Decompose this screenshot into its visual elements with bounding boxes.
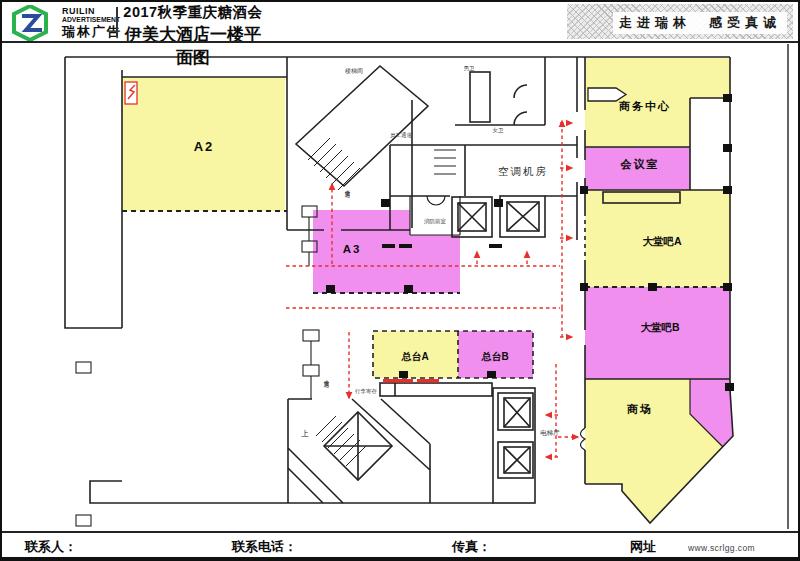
- label-meeting-room: 会议室: [620, 158, 660, 170]
- fire-hydrant-icon: [125, 82, 137, 104]
- label-fire-anteroom: 消防前室: [424, 218, 447, 225]
- label-luggage: 行李寄存: [355, 388, 378, 395]
- decor-fret-band: 走进瑞林 感受真诚: [567, 4, 793, 39]
- brand-line2: ADVERTISEMENT: [62, 16, 122, 23]
- label-mens-wc: 男卫: [464, 65, 476, 72]
- floor-plan: A2 A3 总台A 总台B 商务中心 会议室 大堂吧A 大堂吧B 商场 楼梯间 …: [0, 42, 800, 531]
- website-url: www.scrlgg.com: [688, 543, 755, 553]
- phone-label: 联系电话：: [232, 538, 297, 556]
- web-label: 网址: [630, 538, 656, 556]
- label-frontdesk-b: 总台B: [480, 351, 508, 362]
- label-mall: 商场: [626, 403, 653, 415]
- label-ac-room: 空调机房: [498, 165, 548, 177]
- footer: 联系人： 联系电话： 传真： 网址 www.scrlgg.com: [0, 531, 800, 559]
- label-stairs-up: 上: [301, 429, 309, 438]
- region-fills: [122, 58, 733, 522]
- fax-label: 传真：: [452, 538, 491, 556]
- contact-label: 联系人：: [25, 538, 77, 556]
- slogan-text: 走进瑞林 感受真诚: [613, 12, 787, 34]
- red-annotation: [383, 379, 439, 383]
- label-frontdesk-a: 总台A: [400, 351, 428, 362]
- page: RUILIN ADVERTISEMENT 瑞林广告 2017秋季重庆糖酒会 伊美…: [0, 0, 800, 561]
- brand-cn: 瑞林广告: [62, 25, 122, 39]
- header: RUILIN ADVERTISEMENT 瑞林广告 2017秋季重庆糖酒会 伊美…: [0, 0, 800, 42]
- label-elevator-hall: 电梯厅: [540, 429, 560, 436]
- label-stairwell: 楼梯间: [345, 68, 363, 75]
- label-business-center: 商务中心: [618, 100, 671, 112]
- title-floorplan: 伊美大酒店一楼平面图: [118, 23, 268, 69]
- label-staff-passage: 员工通道: [390, 131, 413, 138]
- label-a3: A3: [343, 243, 362, 255]
- title-event: 2017秋季重庆糖酒会: [118, 3, 268, 22]
- header-rule: [0, 41, 800, 43]
- label-lobby-bar-b: 大堂吧B: [640, 321, 680, 333]
- region-lobby-b-fill: [585, 287, 730, 379]
- brand-text: RUILIN ADVERTISEMENT 瑞林广告: [62, 7, 122, 38]
- label-safe-passage-1: 安全通道: [344, 190, 350, 197]
- label-a2: A2: [194, 139, 215, 154]
- label-lobby-bar-a: 大堂吧A: [642, 235, 682, 247]
- page-title: 2017秋季重庆糖酒会 伊美大酒店一楼平面图: [118, 3, 268, 69]
- ruilin-logo-icon: [10, 5, 56, 41]
- label-safe-passage-2: 安全通道: [323, 380, 329, 387]
- label-womens-wc: 女卫: [493, 127, 505, 133]
- brand-line1: RUILIN: [62, 7, 122, 16]
